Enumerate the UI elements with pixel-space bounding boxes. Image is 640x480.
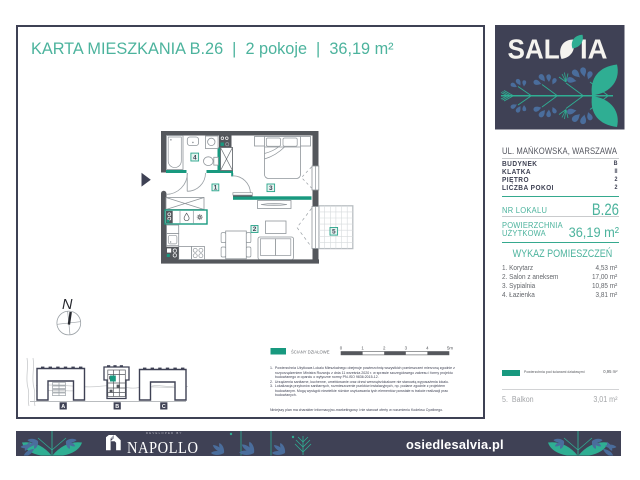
svg-text:A: A (61, 404, 65, 410)
svg-text:C: C (162, 404, 166, 410)
svg-text:SAL: SAL (508, 34, 560, 65)
svg-text:4: 4 (193, 154, 197, 161)
svg-text:2: 2 (253, 226, 257, 233)
svg-text:1: 1 (361, 346, 364, 351)
svg-text:5: 5 (332, 229, 336, 236)
svg-text:B: B (115, 404, 119, 410)
svg-text:4: 4 (426, 346, 429, 351)
svg-text:3: 3 (405, 346, 408, 351)
svg-text:N: N (62, 297, 73, 313)
svg-text:3: 3 (269, 185, 273, 192)
svg-text:5m: 5m (447, 346, 453, 351)
svg-text:1: 1 (214, 185, 218, 192)
svg-text:ŚCIANY DZIAŁOWE: ŚCIANY DZIAŁOWE (291, 349, 330, 354)
svg-text:2: 2 (383, 346, 386, 351)
svg-text:0: 0 (340, 346, 343, 351)
svg-text:IA: IA (580, 33, 608, 64)
